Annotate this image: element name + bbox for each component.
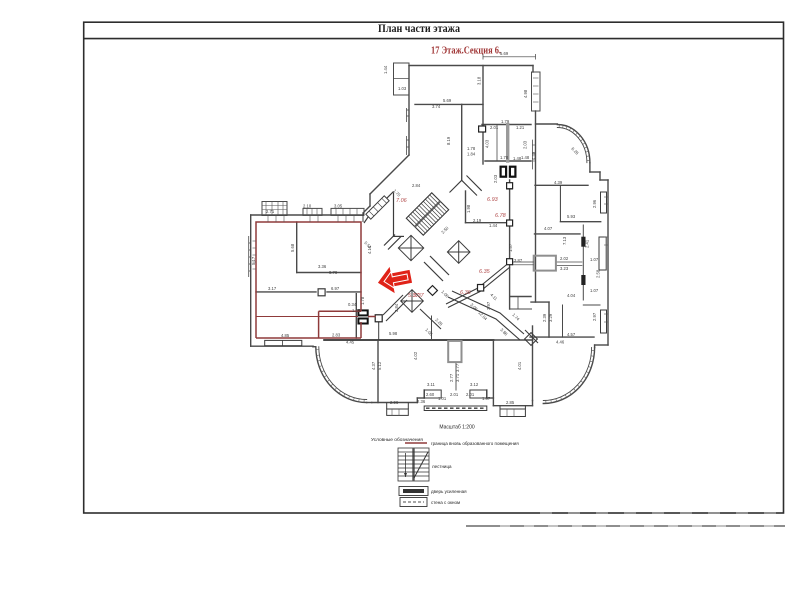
svg-text:12.04: 12.04 <box>477 310 488 321</box>
svg-text:4.85: 4.85 <box>281 333 290 338</box>
svg-text:4.07: 4.07 <box>544 226 553 231</box>
svg-text:1.79: 1.79 <box>501 119 510 124</box>
svg-text:1.07: 1.07 <box>590 288 599 293</box>
svg-text:2.41: 2.41 <box>585 239 590 248</box>
svg-text:4.98: 4.98 <box>523 89 528 98</box>
svg-text:5.17: 5.17 <box>251 256 256 265</box>
svg-text:4.01: 4.01 <box>517 361 522 370</box>
svg-text:3.74: 3.74 <box>432 104 441 109</box>
svg-text:2.01: 2.01 <box>466 392 475 397</box>
svg-text:1.78: 1.78 <box>360 296 365 305</box>
svg-text:2.03: 2.03 <box>493 174 498 183</box>
svg-text:1.44: 1.44 <box>489 223 498 228</box>
svg-text:8.78: 8.78 <box>329 270 338 275</box>
svg-text:1.78: 1.78 <box>500 155 509 160</box>
svg-text:1.03: 1.03 <box>352 308 361 313</box>
svg-text:2.02: 2.02 <box>560 256 569 261</box>
svg-text:4.11: 4.11 <box>489 292 499 302</box>
svg-text:4.46: 4.46 <box>556 340 565 345</box>
svg-text:1.84: 1.84 <box>467 152 476 157</box>
svg-text:4.04: 4.04 <box>567 293 576 298</box>
svg-text:17 Этаж.Секция 6.: 17 Этаж.Секция 6. <box>431 46 501 57</box>
svg-text:1.98: 1.98 <box>466 204 471 213</box>
svg-text:4.57: 4.57 <box>567 332 576 337</box>
svg-text:2.97: 2.97 <box>592 312 597 321</box>
svg-text:2.83: 2.83 <box>332 333 341 338</box>
svg-text:3.87: 3.87 <box>514 258 523 263</box>
svg-text:2.96: 2.96 <box>390 400 399 405</box>
svg-text:5.68: 5.68 <box>290 243 295 252</box>
svg-text:4.37: 4.37 <box>371 361 376 370</box>
svg-text:4.40: 4.40 <box>531 151 536 160</box>
svg-text:4.39: 4.39 <box>554 180 563 185</box>
svg-text:2.28: 2.28 <box>434 317 444 327</box>
svg-text:5.69: 5.69 <box>443 98 452 103</box>
svg-text:8.19: 8.19 <box>446 136 451 145</box>
svg-text:2.03: 2.03 <box>523 140 528 149</box>
svg-text:2.01: 2.01 <box>490 125 499 130</box>
svg-text:4.02: 4.02 <box>413 351 418 360</box>
svg-text:2.60: 2.60 <box>426 392 435 397</box>
svg-text:7.06: 7.06 <box>396 198 408 204</box>
svg-text:1.07: 1.07 <box>590 257 599 262</box>
svg-text:6.36: 6.36 <box>460 290 472 296</box>
svg-text:2.10: 2.10 <box>303 204 312 209</box>
svg-text:5.98: 5.98 <box>389 331 398 336</box>
svg-text:2.96: 2.96 <box>592 199 597 208</box>
svg-text:лестница: лестница <box>432 464 452 469</box>
svg-text:1.08: 1.08 <box>424 327 434 337</box>
svg-text:3.29: 3.29 <box>548 313 553 322</box>
svg-text:дверь усиленная: дверь усиленная <box>431 489 467 494</box>
svg-text:3.18: 3.18 <box>477 76 482 85</box>
svg-text:1.21: 1.21 <box>516 125 525 130</box>
svg-text:4.10: 4.10 <box>367 245 372 254</box>
svg-text:3.36: 3.36 <box>318 264 327 269</box>
svg-text:0.34: 0.34 <box>348 302 357 307</box>
svg-text:6.78: 6.78 <box>495 213 507 219</box>
svg-text:3.17: 3.17 <box>268 286 277 291</box>
svg-text:2.85: 2.85 <box>506 400 515 405</box>
svg-text:Масштаб 1:200: Масштаб 1:200 <box>439 425 475 431</box>
svg-text:План части этажа: План части этажа <box>378 23 460 35</box>
svg-text:6.93: 6.93 <box>487 197 499 203</box>
svg-text:2.77: 2.77 <box>449 373 454 382</box>
svg-text:6.35: 6.35 <box>479 269 491 275</box>
svg-text:2.50: 2.50 <box>440 225 450 235</box>
svg-text:2.39: 2.39 <box>542 313 547 322</box>
svg-text:3.12: 3.12 <box>470 382 479 387</box>
svg-text:граница вновь образованного по: граница вновь образованного помещения <box>431 441 519 446</box>
svg-text:5.12: 5.12 <box>377 361 382 370</box>
svg-text:1.07: 1.07 <box>482 396 491 401</box>
svg-text:1.03: 1.03 <box>398 86 407 91</box>
svg-text:3.05: 3.05 <box>334 204 343 209</box>
svg-text:3.77: 3.77 <box>455 363 460 372</box>
svg-text:4.03: 4.03 <box>485 139 490 148</box>
svg-text:2.01: 2.01 <box>450 392 459 397</box>
svg-text:Условные обозначения: Условные обозначения <box>371 437 423 443</box>
svg-text:1.48: 1.48 <box>521 155 530 160</box>
svg-text:5.37: 5.37 <box>413 293 425 299</box>
svg-text:7.13: 7.13 <box>562 236 567 245</box>
svg-text:2.84: 2.84 <box>394 303 399 312</box>
svg-text:5.69: 5.69 <box>500 51 509 56</box>
svg-text:6.97: 6.97 <box>331 286 340 291</box>
svg-text:стена с окном: стена с окном <box>431 500 460 505</box>
svg-text:6.28: 6.28 <box>570 146 580 156</box>
svg-text:3.23: 3.23 <box>560 266 569 271</box>
svg-text:1.74: 1.74 <box>511 312 521 322</box>
svg-text:3.97: 3.97 <box>486 301 491 310</box>
svg-text:2.36: 2.36 <box>417 399 426 404</box>
svg-text:1.01: 1.01 <box>438 396 447 401</box>
svg-text:1.44: 1.44 <box>383 65 388 74</box>
svg-text:3.11: 3.11 <box>427 382 436 387</box>
svg-text:5.93: 5.93 <box>567 214 576 219</box>
svg-text:3.71: 3.71 <box>455 373 460 382</box>
svg-text:1.57: 1.57 <box>508 243 513 252</box>
svg-text:4.45: 4.45 <box>346 340 355 345</box>
svg-text:2.58: 2.58 <box>596 269 601 278</box>
svg-text:2.19: 2.19 <box>473 218 482 223</box>
svg-text:1.78: 1.78 <box>467 146 476 151</box>
svg-text:2.84: 2.84 <box>412 183 421 188</box>
